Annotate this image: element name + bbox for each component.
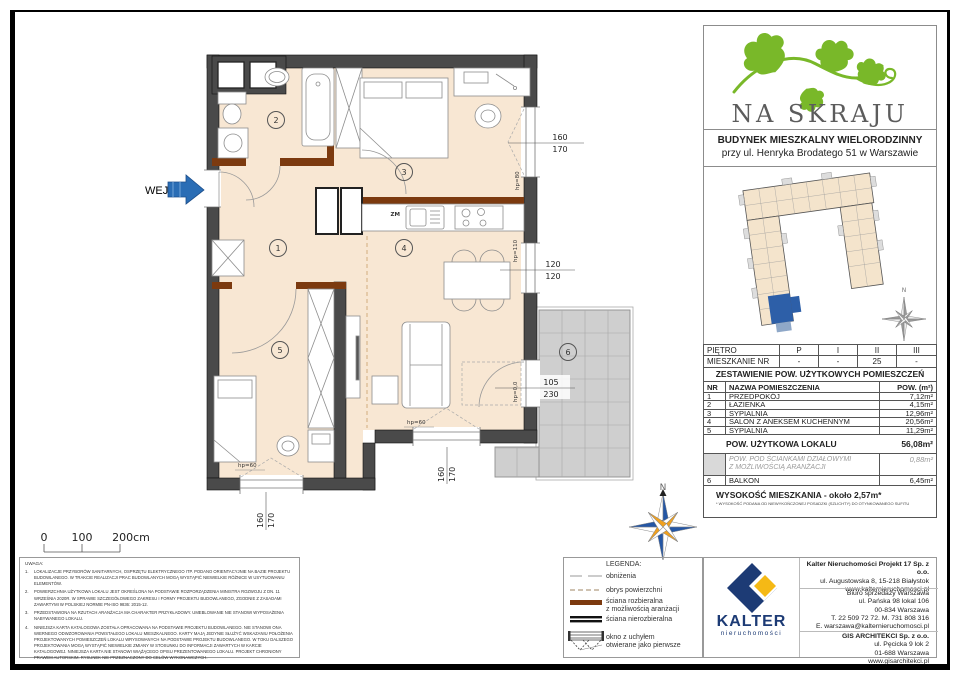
apartment-number: 25 <box>858 356 897 367</box>
svg-text:hp=80: hp=80 <box>515 171 521 190</box>
catalog-page: 160 170 120 120 105 230 160 170 160 170 … <box>0 0 960 678</box>
fixed-wall-symbol <box>570 616 602 622</box>
window-symbol <box>568 631 604 650</box>
apartment-height: WYSOKOŚĆ MIESZKANIA - około 2,57m* * WYS… <box>704 485 936 515</box>
entrance-opening <box>204 170 221 207</box>
sales-office-address: Biuro sprzedaży Warszawa ul. Pańska 98 l… <box>800 590 933 631</box>
kalter-logo-sub: nieruchomości <box>704 630 799 637</box>
dishwasher-label: ZM <box>391 212 400 218</box>
svg-text:160: 160 <box>552 133 567 142</box>
table-row: 4SALON Z ANEKSEM KUCHENNYM20,56m² <box>704 418 936 426</box>
floor-row-label: PIĘTRO <box>704 345 780 356</box>
svg-text:230: 230 <box>543 390 558 399</box>
siteplan-box: N <box>703 166 937 345</box>
table-row: 2ŁAZIENKA4,15m² <box>704 401 936 409</box>
table-row: 3SYPIALNIA12,96m² <box>704 410 936 418</box>
svg-text:120: 120 <box>545 272 560 281</box>
kalter-logo-icon <box>726 562 778 614</box>
compass-rose: N <box>629 483 697 560</box>
building-address: przy ul. Henryka Brodatego 51 w Warszawi… <box>704 147 936 160</box>
svg-text:hp=60: hp=60 <box>407 420 426 426</box>
removable-wall-symbol <box>570 600 602 605</box>
building-address-box: BUDYNEK MIESZKALNY WIELORODZINNY przy ul… <box>703 129 937 167</box>
scale-bar: 0 100 200cm <box>41 531 150 552</box>
note-item: 3.PRZEDSTAWIONA NA RZUTACH ARANŻACJA MA … <box>25 610 294 622</box>
balcony-row: 6 BALKON 6,45m² <box>704 476 936 485</box>
legend-box: LEGENDA: obniżenia obrys powierzchni ści… <box>563 557 703 658</box>
svg-text:105: 105 <box>543 378 558 387</box>
svg-text:3: 3 <box>401 168 406 177</box>
area-table: ZESTAWIENIE POW. UŻYTKOWYCH POMIESZCZEŃ … <box>703 367 937 518</box>
floor-table: PIĘTRO P I II III MIESZKANIE NR - - 25 - <box>703 344 937 368</box>
svg-text:100: 100 <box>72 531 93 544</box>
svg-text:6: 6 <box>565 348 570 357</box>
table-row: 1PRZEDPOKÓJ7,12m² <box>704 393 936 401</box>
legend-title: LEGENDA: <box>606 561 641 568</box>
siteplan-map: N <box>704 167 936 344</box>
svg-text:120: 120 <box>545 260 560 269</box>
brand-box: NA SKRAJU <box>703 25 937 130</box>
brand-vine-icon: NA SKRAJU <box>704 26 936 129</box>
notes-title: UWAGA: <box>25 561 294 568</box>
notes-box: UWAGA: 1.LOKALIZACJE PRZYBORÓW SANITARNY… <box>19 557 300 658</box>
svg-text:170: 170 <box>267 513 276 528</box>
svg-text:160: 160 <box>437 467 446 482</box>
svg-text:170: 170 <box>448 467 457 482</box>
note-item: 2.POWIERZCHNIA UŻYTKOWA LOKALU JEST OKRE… <box>25 589 294 607</box>
company-box: KALTER nieruchomości Kalter Nieruchomośc… <box>703 557 937 658</box>
partition-area-row: POW. POD ŚCIANKAMI DZIAŁOWYMIZ MOŻLIWOŚC… <box>704 454 936 476</box>
svg-text:hp=60: hp=60 <box>238 463 257 469</box>
note-item: 4.NINIEJSZA KARTA KATALOGOWA ZOSTAŁA OPR… <box>25 625 294 662</box>
brand-title: NA SKRAJU <box>731 100 908 128</box>
svg-text:hp=0,0: hp=0,0 <box>513 381 519 402</box>
architect-address: GIS ARCHITEKCI Sp. z o.o. ul. Pęcicka 9 … <box>800 633 933 666</box>
kalter-logo-text: KALTER <box>704 613 799 631</box>
svg-text:hp=110: hp=110 <box>513 239 519 262</box>
svg-text:160: 160 <box>256 513 265 528</box>
svg-text:170: 170 <box>552 145 567 154</box>
legend-symbols <box>568 570 604 656</box>
svg-text:4: 4 <box>401 244 406 253</box>
mini-compass-icon: N <box>882 287 926 341</box>
note-item: 1.LOKALIZACJE PRZYBORÓW SANITARNYCH, OSP… <box>25 569 294 587</box>
building-type: BUDYNEK MIESZKALNY WIELORODZINNY <box>704 134 936 147</box>
highlighted-unit <box>768 292 804 333</box>
svg-text:1: 1 <box>275 244 280 253</box>
svg-text:2: 2 <box>273 116 278 125</box>
entrance-marker: WEJŚCIE <box>145 175 204 204</box>
svg-text:200cm: 200cm <box>112 531 150 544</box>
svg-text:5: 5 <box>277 346 282 355</box>
total-area-row: POW. UŻYTKOWA LOKALU 56,08m² <box>704 435 936 454</box>
table-row: 5SYPIALNIA11,29m² <box>704 427 936 435</box>
area-table-title: ZESTAWIENIE POW. UŻYTKOWYCH POMIESZCZEŃ <box>704 368 936 382</box>
floor-plan: 160 170 120 120 105 230 160 170 160 170 … <box>0 0 700 560</box>
apartment-row-label: MIESZKANIE NR <box>704 356 780 367</box>
svg-text:0: 0 <box>41 531 48 544</box>
svg-text:N: N <box>902 287 907 294</box>
